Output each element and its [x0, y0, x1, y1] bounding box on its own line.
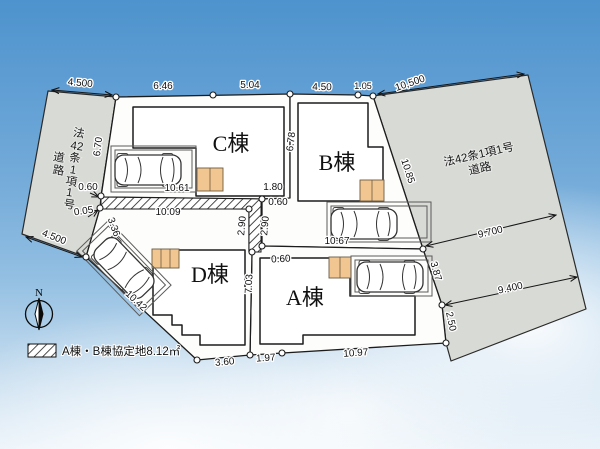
dim-label: 7.03	[244, 273, 256, 293]
building-label-d: D棟	[191, 262, 229, 287]
dim-label: 2.90	[259, 215, 272, 236]
building-label-b: B棟	[319, 150, 356, 175]
building-label-a: A棟	[286, 285, 324, 310]
dim-label: 10.61	[164, 183, 189, 194]
dim-label: 0.60	[78, 182, 98, 193]
dim-label: 3.60	[215, 356, 236, 369]
dim-label: 5.04	[240, 80, 260, 91]
north-label: N	[35, 287, 43, 299]
dim-label: 4.50	[312, 82, 332, 93]
dim-label: 10.09	[155, 207, 180, 218]
porch-a	[329, 257, 351, 278]
porch-c	[197, 168, 223, 191]
dim-label: 1.80	[263, 182, 283, 193]
car-icon	[357, 261, 423, 294]
building-label-c: C棟	[213, 131, 250, 156]
dim-label: 6.46	[153, 81, 173, 92]
dim-label: 0.60	[268, 197, 288, 208]
dim-label: 2.90	[236, 215, 249, 236]
dim-label: 1.05	[354, 81, 372, 91]
dim-label: 10.97	[343, 347, 369, 360]
dim-label: 10.67	[324, 236, 349, 247]
dim-label: 0.60	[271, 253, 291, 265]
site-plan: 4.500 6.46 5.04 4.50 1.05 10,500 6.70 6.…	[0, 0, 600, 449]
legend-hatch-swatch	[28, 344, 56, 357]
car-icon	[115, 154, 181, 187]
legend-text: A棟・B棟協定地8.12㎡	[62, 344, 181, 358]
dim-label: 1.97	[256, 352, 277, 364]
porch-d	[152, 249, 179, 268]
porch-b	[360, 180, 384, 201]
legend: A棟・B棟協定地8.12㎡	[28, 344, 181, 358]
dim-label: 4.500	[67, 77, 93, 90]
north-arrow-icon: N	[26, 287, 53, 330]
plan-svg: 4.500 6.46 5.04 4.50 1.05 10,500 6.70 6.…	[0, 0, 600, 449]
